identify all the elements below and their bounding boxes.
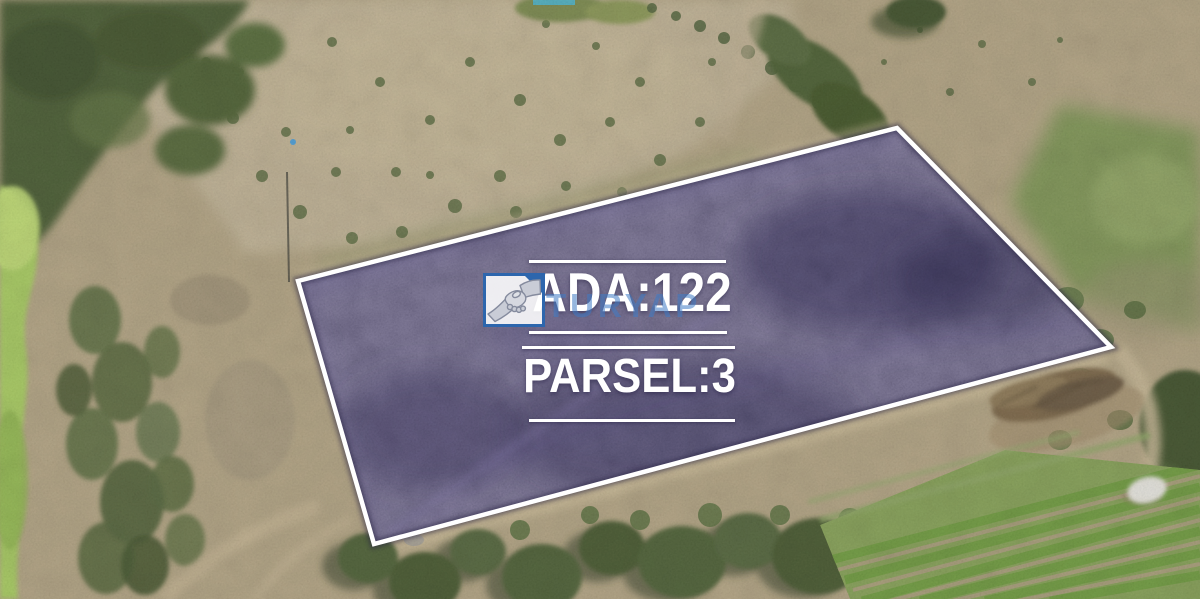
brand-logo <box>483 273 545 327</box>
parsel-label: PARSEL:3 <box>520 353 739 401</box>
divider-line-mid-lower <box>522 346 735 349</box>
brand-watermark-text: TURYAP <box>546 289 701 322</box>
divider-line-bottom <box>529 419 735 422</box>
handshake-icon <box>483 273 545 327</box>
aerial-photo-scene: ADA:122 PARSEL:3 TURYAP <box>0 0 1200 599</box>
divider-line-mid-upper <box>529 331 727 334</box>
